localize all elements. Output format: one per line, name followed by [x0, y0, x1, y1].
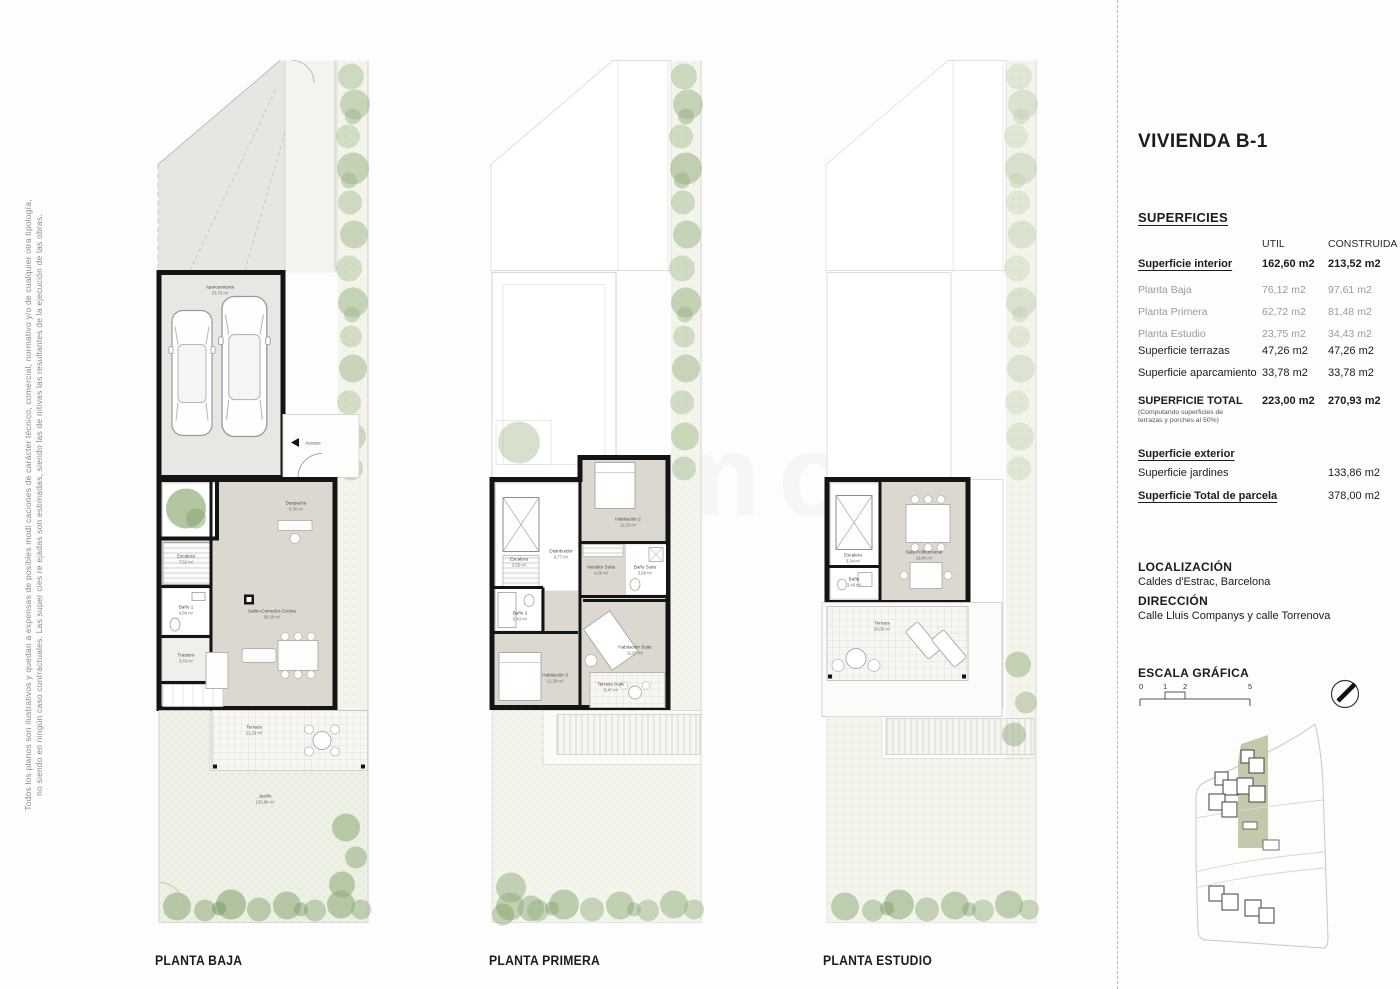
- room-label: Despacho: [286, 501, 307, 506]
- room-area: 3,63 m²: [179, 659, 194, 664]
- room-label: Escalera: [510, 557, 528, 562]
- planta-estudio-drawing: Escalera 3,34 m² Baño 3,46 m²: [818, 50, 1123, 935]
- room-label: Vestidor Suite: [587, 565, 616, 570]
- room-area: 4,84 m²: [179, 611, 194, 616]
- room-label: Escalera: [177, 554, 195, 559]
- plan-sheet: Todos los planos son ilustrativos y qued…: [0, 0, 1400, 989]
- scale-tick-2: 2: [1183, 682, 1187, 691]
- room-area: 3,46 m²: [847, 583, 862, 588]
- label-planta-baja: PLANTA BAJA: [155, 953, 242, 968]
- floorplan-planta-estudio: Escalera 3,34 m² Baño 3,46 m²: [818, 50, 1123, 935]
- direccion-value: Calle Lluis Companys y calle Torrenova: [1138, 610, 1330, 622]
- room-area: 58,39 m²: [264, 615, 281, 620]
- room-label: Distribuidor: [549, 549, 573, 554]
- floorplan-planta-baja: Aparcamiento 33,78 m² Acceso Escalera 7,…: [150, 50, 455, 935]
- patio-tree-ghost: [498, 422, 540, 464]
- studio-interior: Escalera 3,34 m² Baño 3,46 m²: [827, 480, 968, 603]
- room-area: 3,66 m²: [638, 571, 653, 576]
- desk: [278, 521, 312, 531]
- room-label: Baño 2: [513, 611, 528, 616]
- bano-suite: Baño Suite 3,66 m²: [626, 545, 666, 595]
- outdoor-table: [313, 732, 331, 750]
- scale-bar: 0 1 2 5: [1136, 680, 1261, 708]
- house-interior: Escalera 7,52 m² Baño 1 4,84 m² Trastero…: [159, 480, 335, 709]
- kitchen-island: [206, 653, 228, 689]
- floor-interior: Escalera 3,55 m² Distribuidor 6,77 m² Ha…: [492, 458, 668, 708]
- room-label: Habitación Suite: [618, 645, 652, 650]
- room-label: Baño: [849, 577, 860, 582]
- room-area: 33,78 m²: [212, 291, 229, 296]
- room-label: Salón-Comedor-Cocina: [248, 609, 296, 614]
- room-area: 11,33 m²: [620, 523, 637, 528]
- room-label: Terraza: [874, 621, 890, 626]
- dining-table: [278, 633, 318, 679]
- room-label: Aparcamiento: [206, 285, 235, 290]
- legal-disclaimer: Todos los planos son ilustrativos y qued…: [23, 105, 45, 905]
- room-label: Terraza Suite: [597, 682, 625, 687]
- room-area: 3,55 m²: [512, 563, 527, 568]
- room-label: Escalera: [844, 553, 862, 558]
- planta-primera-drawing: Escalera 3,55 m² Distribuidor 6,77 m² Ha…: [483, 50, 788, 935]
- stairwell: [836, 496, 872, 550]
- room-area: 4,00 m²: [594, 571, 609, 576]
- room-area: 6,77 m²: [554, 555, 569, 560]
- north-arrow-icon: [1326, 675, 1364, 713]
- col-construida: CONSTRUIDA: [1328, 238, 1397, 250]
- room-label: Jardín: [259, 794, 272, 799]
- room-area: 8,36 m²: [289, 507, 304, 512]
- room-label: Sala Polifuncional: [906, 550, 943, 555]
- superficies-heading: SUPERFICIES: [1138, 210, 1228, 225]
- terraza: Terraza 21,26 m²: [212, 711, 368, 771]
- direccion-heading: DIRECCIÓN: [1138, 594, 1208, 608]
- bano-2: Baño 2 5,43 m²: [496, 590, 541, 631]
- scale-tick-1: 1: [1163, 682, 1167, 691]
- total-note: (Computando superficies de terrazas y po…: [1138, 409, 1223, 425]
- entry: Acceso: [283, 415, 359, 478]
- room-label: Terraza: [246, 725, 262, 730]
- room-area: 5,47 m²: [604, 688, 619, 693]
- sheet-divider: [1117, 0, 1118, 989]
- room-label: Trastero: [178, 653, 195, 658]
- escala-heading: ESCALA GRÁFICA: [1138, 666, 1249, 680]
- floorplan-planta-primera: Escalera 3,55 m² Distribuidor 6,77 m² Ha…: [483, 50, 788, 935]
- acceso-label: Acceso: [305, 441, 321, 446]
- sala-polifuncional: Sala Polifuncional 19,84 m²: [900, 496, 952, 589]
- label-planta-primera: PLANTA PRIMERA: [489, 953, 600, 968]
- room-area: 20,06 m²: [874, 627, 891, 632]
- sofa: [242, 649, 276, 663]
- room-area: 3,34 m²: [846, 559, 861, 564]
- room-area: 12,39 m²: [547, 679, 564, 684]
- localizacion-value: Caldes d'Estrac, Barcelona: [1138, 576, 1270, 588]
- terraza-suite: Terraza Suite 5,47 m²: [590, 673, 665, 708]
- garage: Aparcamiento 33,78 m²: [159, 273, 283, 478]
- room-area: 133,86 m²: [256, 800, 275, 805]
- lower-terrace-ghost: [543, 711, 701, 765]
- room-area: 7,52 m²: [179, 560, 194, 565]
- page-title: VIVIENDA B-1: [1138, 131, 1268, 153]
- localizacion-heading: LOCALIZACIÓN: [1138, 560, 1232, 574]
- room-area: 21,26 m²: [246, 731, 263, 736]
- room-label: Habitación 3: [542, 673, 568, 678]
- col-util: UTIL: [1262, 238, 1285, 250]
- room-area: 11,87 m²: [627, 651, 644, 656]
- disclaimer-line-1: Todos los planos son ilustrativos y qued…: [23, 105, 34, 905]
- stairwell: [503, 498, 539, 552]
- room-label: Baño Suite: [634, 565, 657, 570]
- site-plan: [1185, 722, 1350, 967]
- planta-baja-drawing: Aparcamiento 33,78 m² Acceso Escalera 7,…: [150, 50, 455, 935]
- room-label: Baño 1: [179, 605, 194, 610]
- label-planta-estudio: PLANTA ESTUDIO: [823, 953, 932, 968]
- car-small: [169, 311, 215, 436]
- scale-tick-0: 0: [1139, 682, 1143, 691]
- room-area: 19,84 m²: [916, 556, 933, 561]
- scale-tick-5: 5: [1248, 682, 1252, 691]
- disclaimer-line-2: no siendo en ningún caso contractuales. …: [34, 105, 45, 905]
- car-large: [219, 297, 271, 437]
- bano-3: Baño 3,46 m²: [831, 569, 878, 599]
- room-area: 5,43 m²: [513, 617, 528, 622]
- room-label: Habitación 2: [615, 517, 641, 522]
